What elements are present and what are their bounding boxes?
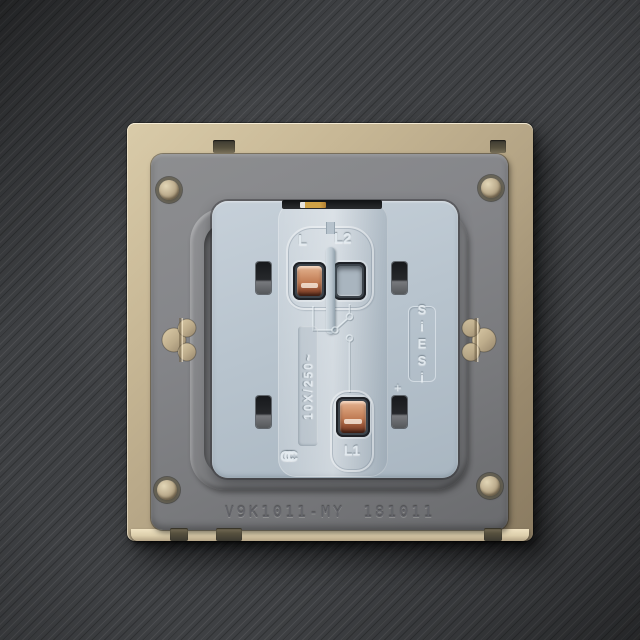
- keyhole-cutout-right: [458, 316, 498, 364]
- plate-notch: [490, 140, 506, 153]
- faceplate-bottom-edge: [131, 529, 529, 541]
- rivet-top-left: [159, 180, 179, 200]
- terminal-window-l: [293, 262, 326, 300]
- claw-slot: [256, 396, 271, 428]
- module-top-slot: [282, 200, 382, 209]
- keyhole-cutout-left: [160, 316, 200, 364]
- empty-terminal-l2: [337, 266, 362, 296]
- rocker-mechanism-peek: [300, 202, 326, 208]
- model-code: V9K1011-MY: [225, 503, 345, 521]
- terminal-label-l2: L2: [334, 230, 352, 247]
- ccc-certification-icon: CCC: [280, 448, 320, 465]
- copper-terminal-l1: [340, 401, 366, 433]
- brand-emboss: SiESi: [408, 306, 436, 382]
- rivet-bottom-left: [157, 480, 177, 500]
- rivet-bottom-right: [480, 476, 500, 496]
- rivet-top-right: [481, 178, 501, 198]
- claw-slot: [392, 396, 407, 428]
- plate-notch: [170, 528, 188, 541]
- claw-slot: [392, 262, 407, 294]
- plate-notch: [484, 528, 502, 541]
- plate-notch: [213, 140, 235, 153]
- model-date-engraving: V9K1011-MY181011: [150, 503, 510, 521]
- plus-mark-emboss: +: [394, 380, 402, 395]
- product-photo-stage: L L2 10X/250~ SiESi + CCC L1 V9K1011-MY1…: [0, 0, 640, 640]
- terminal-label-l: L: [298, 232, 307, 249]
- terminal-label-l1: L1: [338, 442, 366, 458]
- copper-terminal-l: [297, 266, 322, 296]
- rating-emboss: 10X/250~: [298, 326, 318, 446]
- date-code: 181011: [363, 503, 435, 521]
- claw-slot: [256, 262, 271, 294]
- plate-notch: [216, 528, 242, 541]
- terminal-window-l2: [333, 262, 366, 300]
- terminal-window-l1: [336, 397, 370, 437]
